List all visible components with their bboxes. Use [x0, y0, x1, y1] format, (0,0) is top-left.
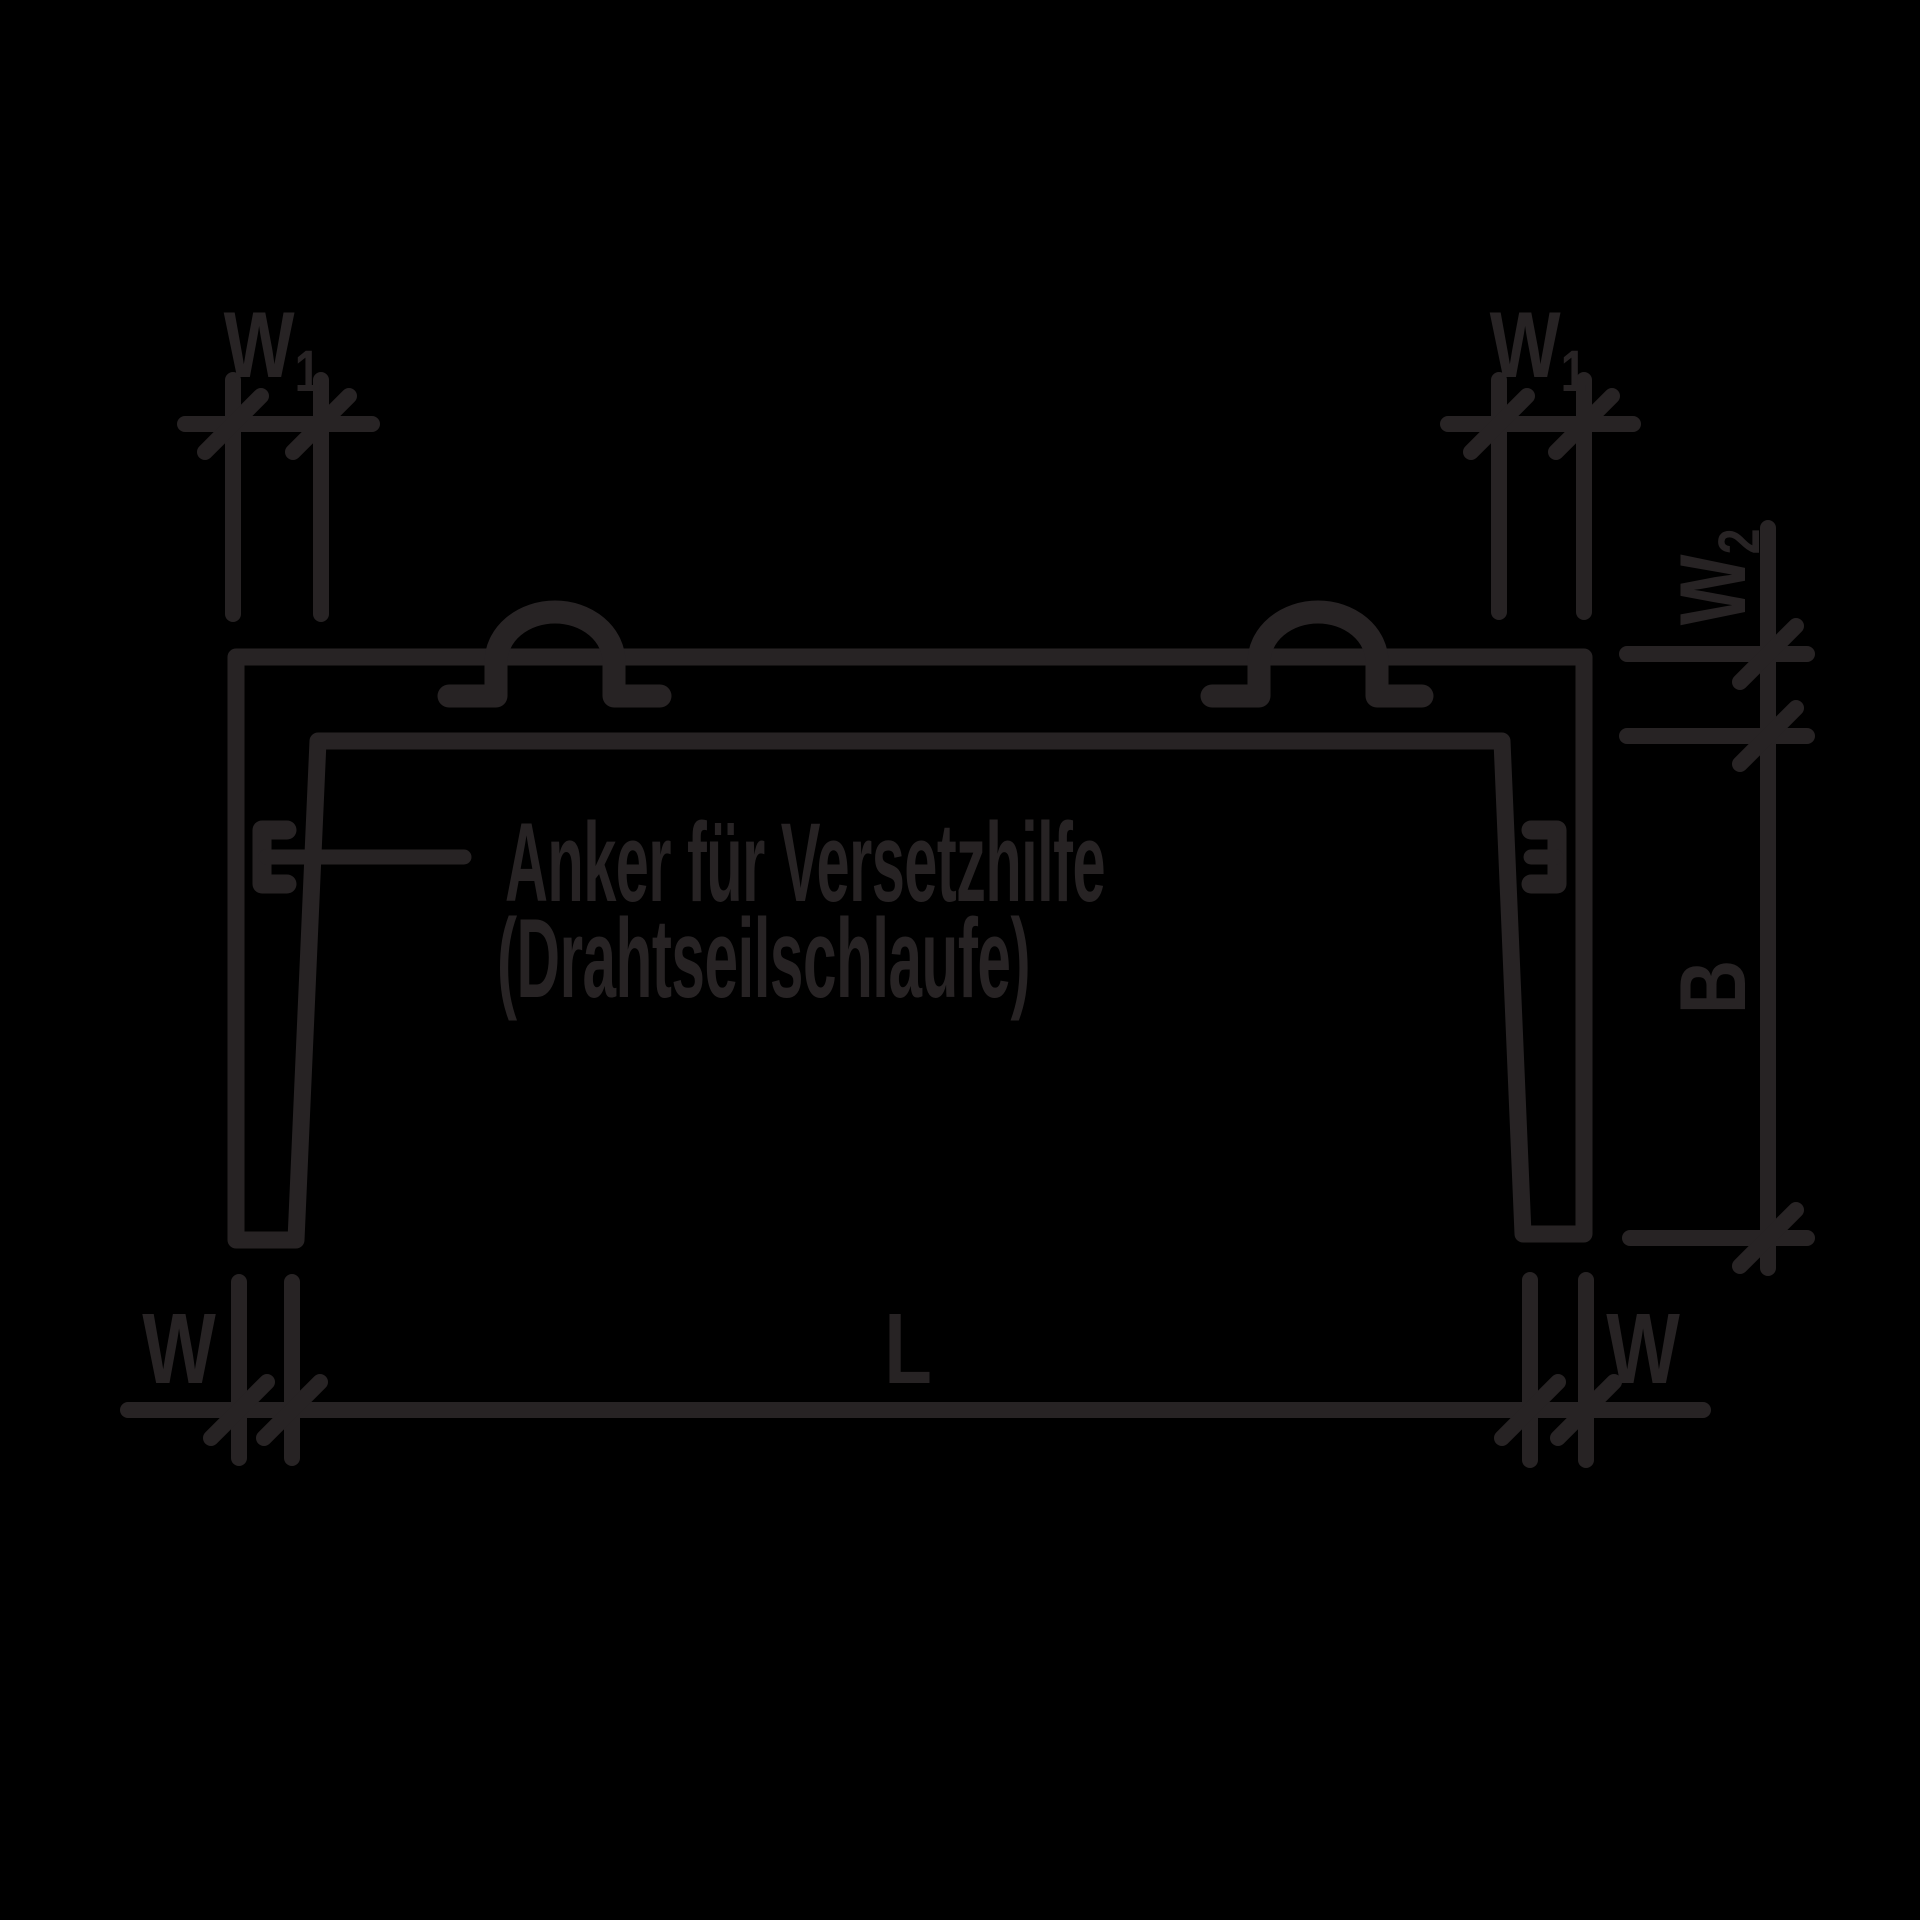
dimension-w1-left: W1 — [185, 293, 372, 614]
dimension-label-w1-right: W1 — [1490, 293, 1587, 404]
dimension-bottom-chain: W L W — [128, 1280, 1703, 1460]
technical-drawing-canvas: Anker für Versetzhilfe (Drahtseilschlauf… — [0, 0, 1920, 1920]
dimension-label-l: L — [884, 1294, 932, 1406]
dimension-w2-b-right: W2 B — [1627, 528, 1807, 1268]
annotation-line2: (Drahtseilschlaufe) — [497, 896, 1030, 1021]
annotation-note: Anker für Versetzhilfe (Drahtseilschlauf… — [497, 800, 1105, 1021]
lintel-dimension-diagram: Anker für Versetzhilfe (Drahtseilschlauf… — [0, 0, 1920, 1920]
dimension-w1-right: W1 — [1448, 293, 1633, 612]
dimension-label-b: B — [1661, 960, 1766, 1014]
dimension-label-w1-left: W1 — [224, 293, 321, 404]
dimension-label-w-right: W — [1606, 1294, 1680, 1406]
dimension-label-w-left: W — [142, 1294, 216, 1406]
dimension-label-w2: W2 — [1661, 529, 1772, 626]
